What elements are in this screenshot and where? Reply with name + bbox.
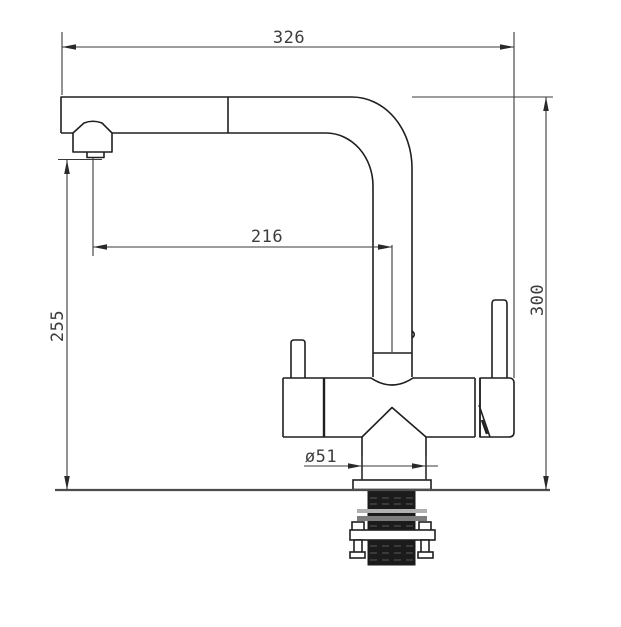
body-top-bell: [283, 378, 475, 385]
base-peak: [362, 408, 426, 438]
spout-inner-profile: [61, 133, 373, 377]
mounting-hardware: [350, 480, 435, 565]
metal-washer: [357, 516, 427, 521]
body-block: [283, 378, 475, 437]
drawing-canvas: 326 216 255 300: [0, 0, 621, 627]
label-overall-width: 326: [273, 28, 305, 48]
arrow-left: [62, 44, 76, 50]
bolt-foot-right: [418, 552, 433, 558]
base-flange: [353, 480, 431, 490]
spout-head: [73, 121, 112, 152]
arrow-top: [543, 97, 549, 111]
label-spout-reach: 216: [251, 227, 283, 247]
label-spout-height: 255: [48, 310, 68, 342]
dimension-216: [93, 158, 392, 352]
arrow-right: [378, 244, 392, 250]
arrow-left: [348, 463, 362, 469]
bolt-stem-left: [354, 540, 362, 553]
arrow-bottom: [64, 476, 70, 490]
threaded-shank: [368, 491, 415, 565]
arrow-right: [500, 44, 514, 50]
mounting-bracket: [350, 530, 435, 540]
label-overall-height: 300: [528, 284, 548, 316]
bolt-stem-right: [421, 540, 429, 553]
base-columns: [362, 437, 426, 480]
arrow-left: [93, 244, 107, 250]
rubber-washer: [357, 509, 427, 513]
arrow-right: [412, 463, 426, 469]
right-lever: [492, 300, 507, 378]
dimension-326: [62, 32, 514, 378]
arrow-top: [64, 160, 70, 174]
faucet-technical-drawing: 326 216 255 300: [0, 0, 621, 627]
label-base-diameter: ø51: [305, 447, 337, 467]
aerator-nozzle: [87, 152, 104, 158]
spout-outer-profile: [61, 97, 412, 377]
bolt-foot-left: [350, 552, 365, 558]
faucet-outline: [61, 97, 514, 480]
arrow-bottom: [543, 476, 549, 490]
left-lever: [291, 340, 305, 378]
